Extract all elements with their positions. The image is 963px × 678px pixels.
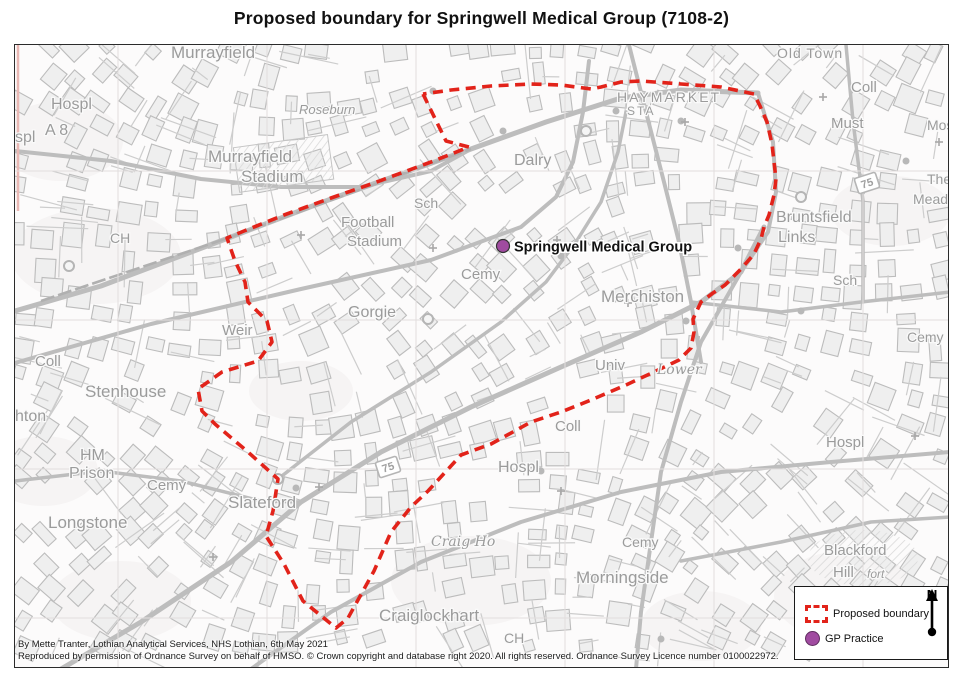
place-label: Meado [913,191,948,207]
attribution: By Mette Tranter, Lothian Analytical Ser… [18,639,779,663]
page-title: Proposed boundary for Springwell Medical… [0,8,963,29]
gp-practice-marker [497,240,510,253]
place-label: Murrayfield [208,147,292,166]
legend-boundary-label: Proposed boundary [833,608,929,620]
map-document: Proposed boundary for Springwell Medical… [0,0,963,678]
north-arrow: N [921,589,943,655]
map-frame: MurrayfieldHosplsplA 8RoseburnMurrayfiel… [14,44,949,668]
place-label: HM [80,447,105,464]
place-label: Craiglockhart [379,606,479,625]
place-label: CH [110,230,130,246]
legend: Proposed boundary GP Practice N [794,586,948,660]
place-label: Prison [69,465,114,482]
place-label: HAYMARKET [617,89,721,105]
place-label: Merchiston [601,287,684,306]
place-label: Old Town [777,45,843,61]
place-label: Murrayfield [171,45,255,62]
place-label: hton [15,408,46,425]
gp-practice-symbol [805,631,820,646]
place-label: Dalry [514,152,551,169]
place-label: Lower [656,362,703,378]
place-label: Morningside [576,568,669,587]
attribution-line1: By Mette Tranter, Lothian Analytical Ser… [18,639,779,651]
north-arrow-icon [921,589,943,639]
place-label: The [927,171,948,187]
place-label: Bruntsfield [776,209,852,226]
place-label: Links [778,229,815,246]
place-label: Sch [414,195,438,211]
place-label: Longstone [48,513,127,532]
attribution-line2: Reproduced by permission of Ordnance Sur… [18,651,779,663]
place-label: Mos [927,117,948,133]
place-label: Univ [595,357,626,374]
place-label: Cemy [907,329,944,345]
place-label: Weir [222,322,253,339]
gp-practice-marker-label: Springwell Medical Group [514,240,692,256]
place-label: Must [831,115,864,132]
place-label: Cemy [147,477,187,494]
place-label: STA [627,104,655,118]
map-canvas: MurrayfieldHosplsplA 8RoseburnMurrayfiel… [15,45,948,667]
place-label: A 8 [45,122,68,139]
place-label: Hill [833,564,854,581]
place-label: Roseburn [299,102,355,117]
place-label: Cemy [622,534,659,550]
place-label: spl [15,129,35,146]
place-label: Stadium [347,233,402,250]
place-label: Stenhouse [85,382,166,401]
place-label: Gorgie [348,304,396,321]
place-label: Craig Ho [431,534,495,550]
legend-gp-label: GP Practice [825,633,884,645]
place-label: Coll [851,79,877,96]
place-label: Coll [35,353,61,370]
place-label: Slateford [228,493,296,512]
place-label: Blackford [824,542,887,559]
place-label: Hospl [51,96,92,113]
proposed-boundary-symbol [805,605,828,623]
map-layers: MurrayfieldHosplsplA 8RoseburnMurrayfiel… [15,45,948,667]
place-label: Hospl [498,459,539,476]
place-label: Sch [833,272,857,288]
place-label: Hospl [826,434,864,451]
place-label: fort [867,567,885,581]
place-label: Coll [555,418,581,435]
place-label: Stadium [241,167,303,186]
place-label: Football [341,214,394,231]
place-label: Cemy [461,266,501,283]
